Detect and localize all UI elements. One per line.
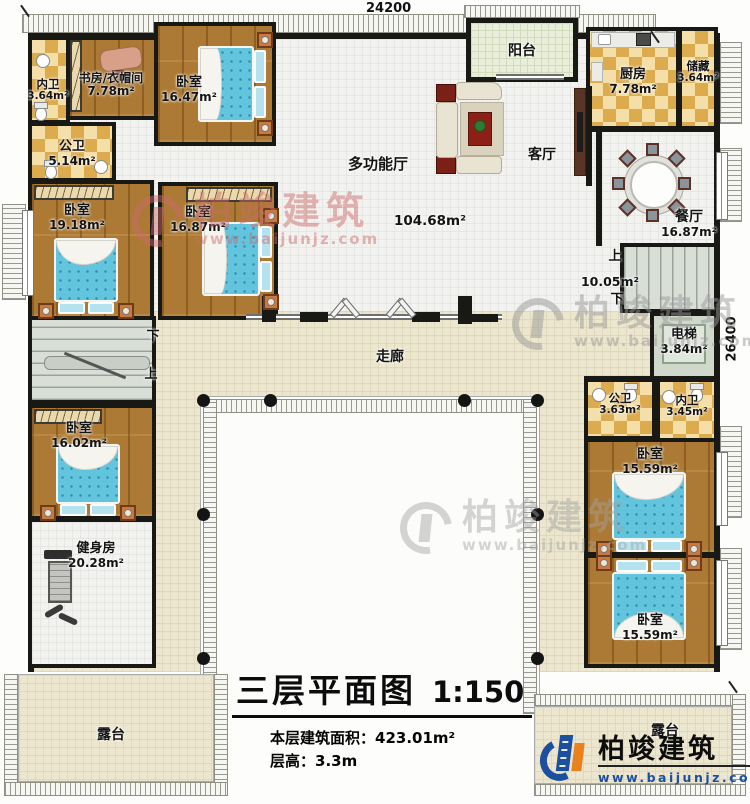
stair-up: 上 [140,368,162,383]
column-icon [197,652,210,665]
void-hatch-top [215,399,525,413]
bed-icon [602,472,696,554]
chair-icon [646,143,659,156]
sofa-left-icon [436,102,458,158]
side-table-icon [436,156,456,174]
room-label-dining: 餐厅 16.87m² [656,210,722,239]
wall-stub [458,314,498,322]
chair-icon [618,198,636,216]
room-area: 15.59m² [598,629,702,642]
window-hatch-right-1 [720,42,742,124]
room-area: 16.47m² [156,91,222,104]
stat-area-value: 423.01m² [375,729,455,747]
window-icon [22,210,34,296]
room-label-balcony: 阳台 [488,44,556,60]
room-label-gym: 健身房 20.28m² [50,542,142,570]
room-label-storage: 储藏 3.64m² [676,60,720,85]
chair-icon [618,149,636,167]
company-logo: 柏竣建筑 www.baijunjz.com [540,724,748,796]
stair-down: 下 [142,330,164,345]
folding-door-icon [330,294,360,320]
dimension-tick [728,681,738,694]
staircase-left [28,316,156,404]
room-label-multihall: 多功能厅 [328,155,428,173]
window-icon [716,560,728,646]
terrace2-rail-top [534,694,746,706]
room-area: 16.87m² [656,226,722,239]
title-scale: 1:150 [432,675,524,709]
room-name: 阳台 [508,43,536,59]
void-hatch-left [203,399,217,714]
room-name: 卧室 [598,448,702,463]
column-icon [458,394,471,407]
sofa-bottom-icon [456,156,502,174]
sink-icon [598,34,611,45]
sofa-top-icon [456,82,502,100]
room-name: 卧室 [160,206,236,221]
room-name: 内卫 [658,394,716,407]
room-name: 厨房 [596,68,670,83]
company-url: www.baijunjz.com [598,765,750,785]
company-name: 柏竣建筑 [598,735,750,765]
room-label-public-bath-r: 公卫 3.63m² [588,392,652,417]
title-text: 三层平面图 [236,664,416,712]
room-name: 走廊 [376,349,404,365]
column-icon [531,394,544,407]
room-area: 16.87m² [160,221,236,234]
room-area: 7.78m² [66,85,156,98]
room-area: 19.18m² [34,219,120,232]
room-area: 20.28m² [50,557,142,570]
room-label-bedroom-16-02: 卧室 16.02m² [36,422,122,450]
plant-icon [474,120,486,132]
room-label-bedroom-19-18: 卧室 19.18m² [34,204,120,232]
chair-icon [612,177,625,190]
stair-up: 上 [604,250,626,265]
stair-area-label: 10.05m² [580,275,640,289]
room-label-bedroom-r1: 卧室 15.59m² [598,448,702,476]
folding-door-icon [386,294,416,320]
wall-stub [300,312,328,322]
room-name: 卧室 [36,422,122,437]
room-name: 客厅 [528,147,556,163]
room-name: 内卫 [24,78,72,91]
terrace-rail-right [214,674,228,796]
room-name: 健身房 [50,542,142,557]
room-name: 卧室 [34,204,120,219]
drawing-stats: 本层建筑面积：423.01m² 层高：3.3m [270,727,455,774]
kitchen-bottom-wall [586,126,718,132]
column-icon [264,394,277,407]
stair-down-label: 下 [606,293,628,308]
stair-down: 下 [606,293,628,308]
tv-icon [577,112,583,152]
room-area: 3.64m² [676,73,720,85]
terrace-rail-bottom [4,782,228,796]
bed-icon [44,238,128,316]
window-icon [716,452,728,526]
room-label-bedroom-r2: 卧室 15.59m² [598,614,702,642]
room-label-living: 客厅 [512,148,572,164]
corridor-label: 走廊 [358,350,422,366]
room-label-study: 书房/衣帽间 7.78m² [66,72,156,99]
stove-icon [636,33,651,46]
floor-plan: 内卫 3.64m² 书房/衣帽间 7.78m² 卧室 16.47m² 公卫 5.… [0,0,750,804]
stat-area-label: 本层建筑面积： [270,729,375,747]
stair-left-down-label: 下 [142,330,164,345]
closet-icon [186,187,272,202]
sink-icon [36,54,50,68]
room-name: 卧室 [598,614,702,629]
stair-left-up-label: 上 [140,368,162,383]
room-name: 公卫 [34,140,110,155]
bed-icon [46,444,130,518]
closet-icon [34,185,114,200]
room-area: 15.59m² [598,463,702,476]
room-area: 3.64m² [24,91,72,103]
dimension-value: 24200 [366,1,411,16]
dimension-top: 24200 [366,1,411,16]
terrace-rail-left [4,674,18,796]
company-logo-icon [540,731,590,789]
room-label-ensuite-tl: 内卫 3.64m² [24,78,72,103]
dining-wall [596,128,602,246]
dining-table-top [630,161,678,209]
room-area: 3.84m² [656,343,712,356]
dimension-right: 26400 [725,318,740,362]
room-area: 16.02m² [36,437,122,450]
column-icon [197,508,210,521]
drawing-title: 三层平面图 1:150 [232,664,532,718]
room-name: 公卫 [588,392,652,405]
room-label-kitchen: 厨房 7.78m² [596,68,670,96]
room-area: 5.14m² [34,155,110,168]
balcony-parapet-hatch [464,5,580,18]
column-icon [197,394,210,407]
room-name: 卧室 [156,76,222,91]
column-icon [531,508,544,521]
stat-height-value: 3.3m [315,752,357,770]
room-name: 露台 [97,727,125,743]
stair-area: 10.05m² [580,275,640,289]
room-label-ensuite-r: 内卫 3.45m² [658,394,716,419]
stat-height-label: 层高： [270,752,315,770]
room-name: 电梯 [656,328,712,343]
room-label-bedroom-16-47: 卧室 16.47m² [156,76,222,104]
room-name: 储藏 [676,60,720,73]
stat-height: 层高：3.3m [270,750,455,773]
room-name: 餐厅 [656,210,722,226]
stat-area: 本层建筑面积：423.01m² [270,727,455,750]
room-name: 多功能厅 [348,155,408,173]
living-room-wall [586,86,592,186]
room-area: 104.68m² [394,213,466,229]
room-label-bedroom-16-87: 卧室 16.87m² [160,206,236,234]
room-area: 7.78m² [596,83,670,96]
side-table-icon [436,84,456,102]
room-area: 3.45m² [658,407,716,419]
room-label-multihall-area: 104.68m² [384,211,476,229]
chair-icon [678,177,691,190]
stair-up-label: 上 [604,250,626,265]
balcony-door-track [496,74,564,80]
bath-top-wall [584,376,718,382]
chair-icon [667,149,685,167]
terrace-left-label: 露台 [80,728,142,744]
toilet-icon [34,102,47,120]
column-icon [531,652,544,665]
room-label-public-bath-tl: 公卫 5.14m² [34,140,110,168]
room-area: 3.63m² [588,405,652,417]
room-label-elevator: 电梯 3.84m² [656,328,712,356]
dimension-value: 26400 [725,316,740,361]
